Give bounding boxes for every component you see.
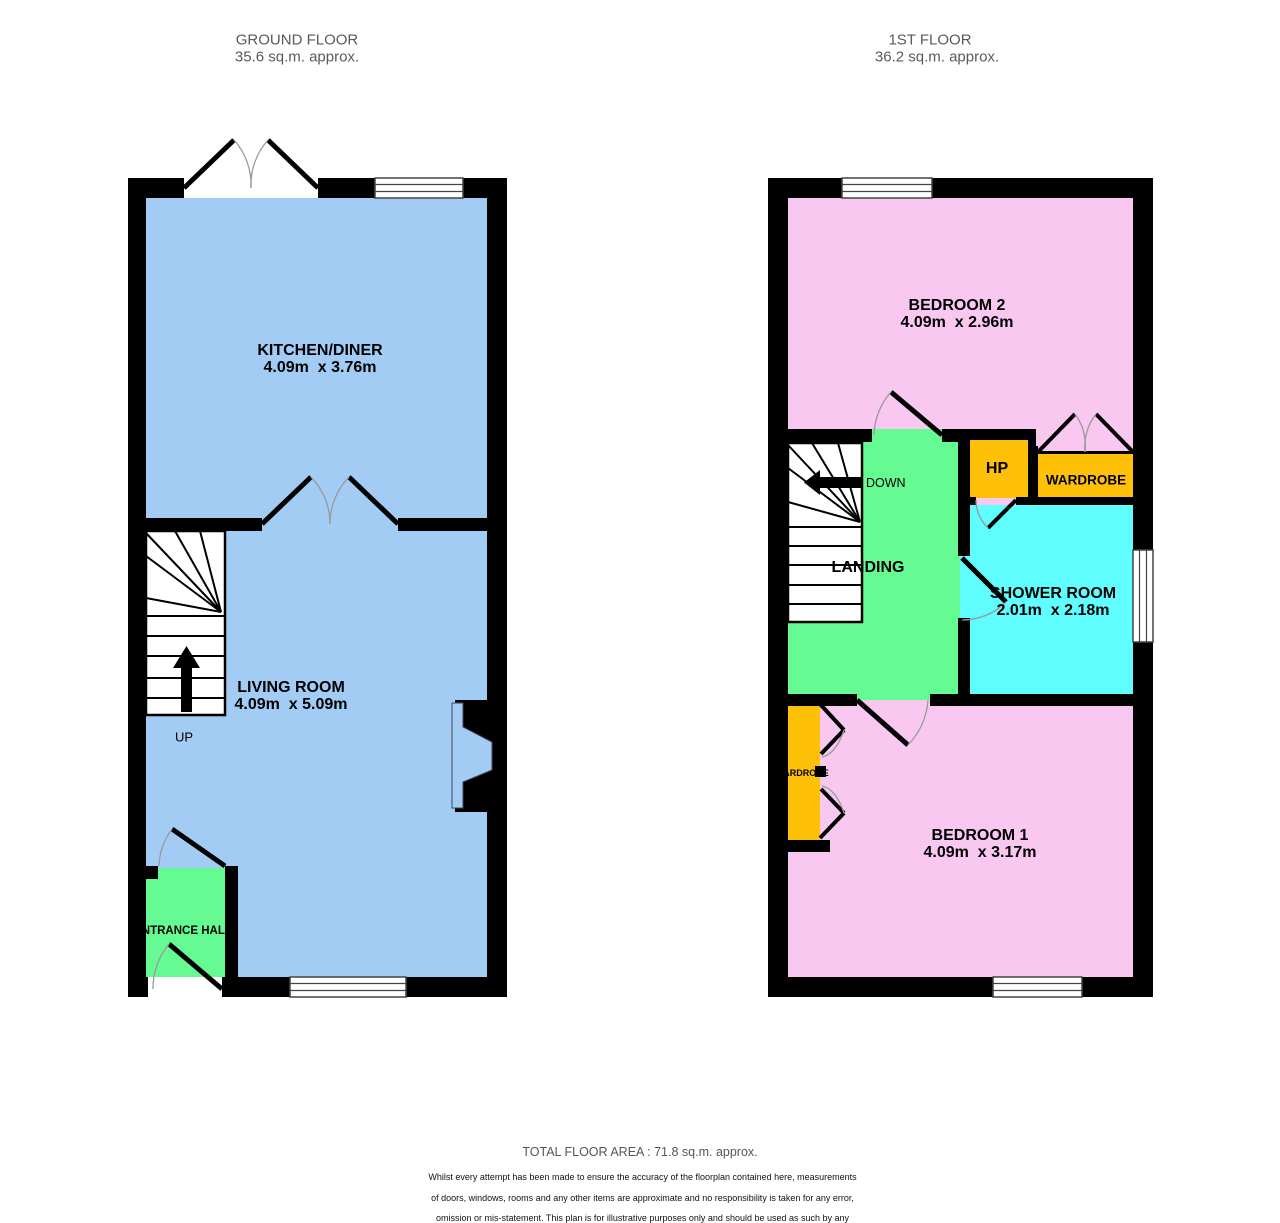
shower-room-dims: 2.01m x 2.18m <box>997 602 1110 620</box>
bedroom2-dims: 4.09m x 2.96m <box>901 314 1014 332</box>
wardrobe-label: WARDROBE <box>1046 473 1126 488</box>
floorplan-page: GROUND FLOOR 35.6 sq.m. approx. 1ST FLOO… <box>0 0 1280 1223</box>
up-label: UP <box>175 730 193 745</box>
disclaimer-text: Whilst every attempt has been made to en… <box>421 1162 859 1223</box>
bedroom1-label: BEDROOM 1 <box>932 827 1029 845</box>
kitchen-diner-label: KITCHEN/DINER <box>257 342 382 360</box>
bedroom2-label: BEDROOM 2 <box>909 297 1006 315</box>
french-doors <box>184 140 318 188</box>
gf-stairs <box>146 531 225 715</box>
ff-window-top <box>842 178 932 198</box>
first-floor-title: 1ST FLOOR <box>888 32 971 49</box>
total-floor-area: TOTAL FLOOR AREA : 71.8 sq.m. approx. <box>522 1145 757 1159</box>
disclaimer-line: Whilst every attempt has been made to en… <box>428 1172 856 1182</box>
ground-floor-plan <box>128 140 507 997</box>
first-floor-area: 36.2 sq.m. approx. <box>875 49 999 66</box>
kitchen-diner-dims: 4.09m x 3.76m <box>264 359 377 377</box>
shower-room-label: SHOWER ROOM <box>990 585 1116 603</box>
disclaimer-line: of doors, windows, rooms and any other i… <box>431 1193 854 1203</box>
bedroom1-wardrobe-label: WARDROBE <box>775 768 829 778</box>
gf-window-bottom <box>290 977 406 997</box>
living-room-dims: 4.09m x 5.09m <box>235 696 348 714</box>
gf-window-top <box>375 178 463 198</box>
landing-label: LANDING <box>832 559 905 577</box>
ff-window-bottom <box>993 977 1082 997</box>
ground-floor-title: GROUND FLOOR <box>236 32 359 49</box>
ff-stairs <box>788 443 862 622</box>
entrance-hall-label: ENTRANCE HALL <box>134 925 232 937</box>
hp-label: HP <box>986 460 1008 478</box>
disclaimer-line: omission or mis-statement. This plan is … <box>436 1213 849 1223</box>
chimney-breast <box>452 700 492 812</box>
down-label: DOWN <box>866 476 906 490</box>
living-room-label: LIVING ROOM <box>237 679 345 697</box>
ground-floor-area: 35.6 sq.m. approx. <box>235 49 359 66</box>
bedroom1-dims: 4.09m x 3.17m <box>924 844 1037 862</box>
shower-window <box>1133 550 1153 642</box>
